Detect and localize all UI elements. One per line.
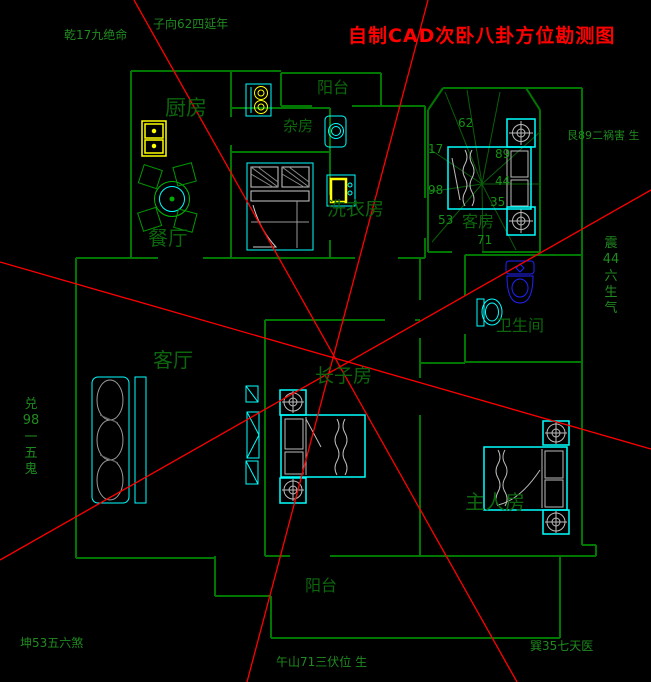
annotation-zi: 子向62四延年 — [153, 18, 228, 31]
annotation-gen: 艮89二祸害 生 — [567, 130, 640, 142]
nightstand-guest-bottom — [507, 207, 535, 235]
bagua-number-35: 35 — [490, 196, 505, 209]
room-label-kitchen: 厨房 — [165, 97, 207, 119]
wall-fixtures — [246, 386, 259, 484]
annotation-qian: 乾17九绝命 — [64, 29, 127, 42]
room-label-utility: 杂房 — [283, 119, 313, 135]
bagua-number-62: 62 — [458, 117, 473, 130]
annotation-kun: 坤53五六煞 — [20, 637, 83, 650]
bagua-number-17: 17 — [428, 143, 443, 156]
room-label-guest: 客房 — [462, 214, 494, 231]
room-label-bathroom: 卫生间 — [496, 318, 544, 335]
bagua-number-53: 53 — [438, 214, 453, 227]
bed-middle — [247, 163, 313, 250]
bagua-number-71: 71 — [477, 234, 492, 247]
dining-table — [138, 163, 197, 233]
bagua-number-44: 44 — [495, 175, 510, 188]
gas-stove — [246, 84, 271, 116]
bagua-number-98: 98 — [428, 184, 443, 197]
nightstand-master-bottom — [543, 510, 569, 534]
kitchen-sink — [142, 121, 166, 156]
annotation-zhen: 震 44 六 生 气 — [596, 236, 626, 317]
bed-son — [281, 415, 365, 477]
toilet — [506, 261, 534, 303]
bagua-number-89: 89 — [495, 148, 510, 161]
annotation-dui: 兑 98 一 五 鬼 — [16, 397, 46, 478]
nightstand-guest-top — [507, 119, 535, 147]
room-label-living: 客厅 — [153, 350, 193, 371]
room-label-balcony-top: 阳台 — [317, 80, 349, 97]
sofa — [92, 377, 146, 503]
room-label-laundry: 洗衣房 — [327, 200, 384, 220]
washing-machine — [325, 116, 346, 147]
room-label-eldest-son: 长子房 — [315, 367, 372, 387]
room-label-balcony-bottom: 阳台 — [305, 578, 337, 595]
nightstand-son-bottom — [280, 478, 306, 503]
annotation-wu: 午山71三伏位 生 — [276, 656, 367, 669]
room-label-dining: 餐厅 — [148, 228, 188, 249]
room-label-master: 主人房 — [465, 492, 525, 513]
cad-floorplan-view: 自制CAD次卧八卦方位勘测图 乾17九绝命 子向62四延年 艮89二祸害 生 震… — [0, 0, 651, 682]
page-title: 自制CAD次卧八卦方位勘测图 — [348, 27, 615, 47]
annotation-xun: 巽35七天医 — [530, 640, 593, 653]
